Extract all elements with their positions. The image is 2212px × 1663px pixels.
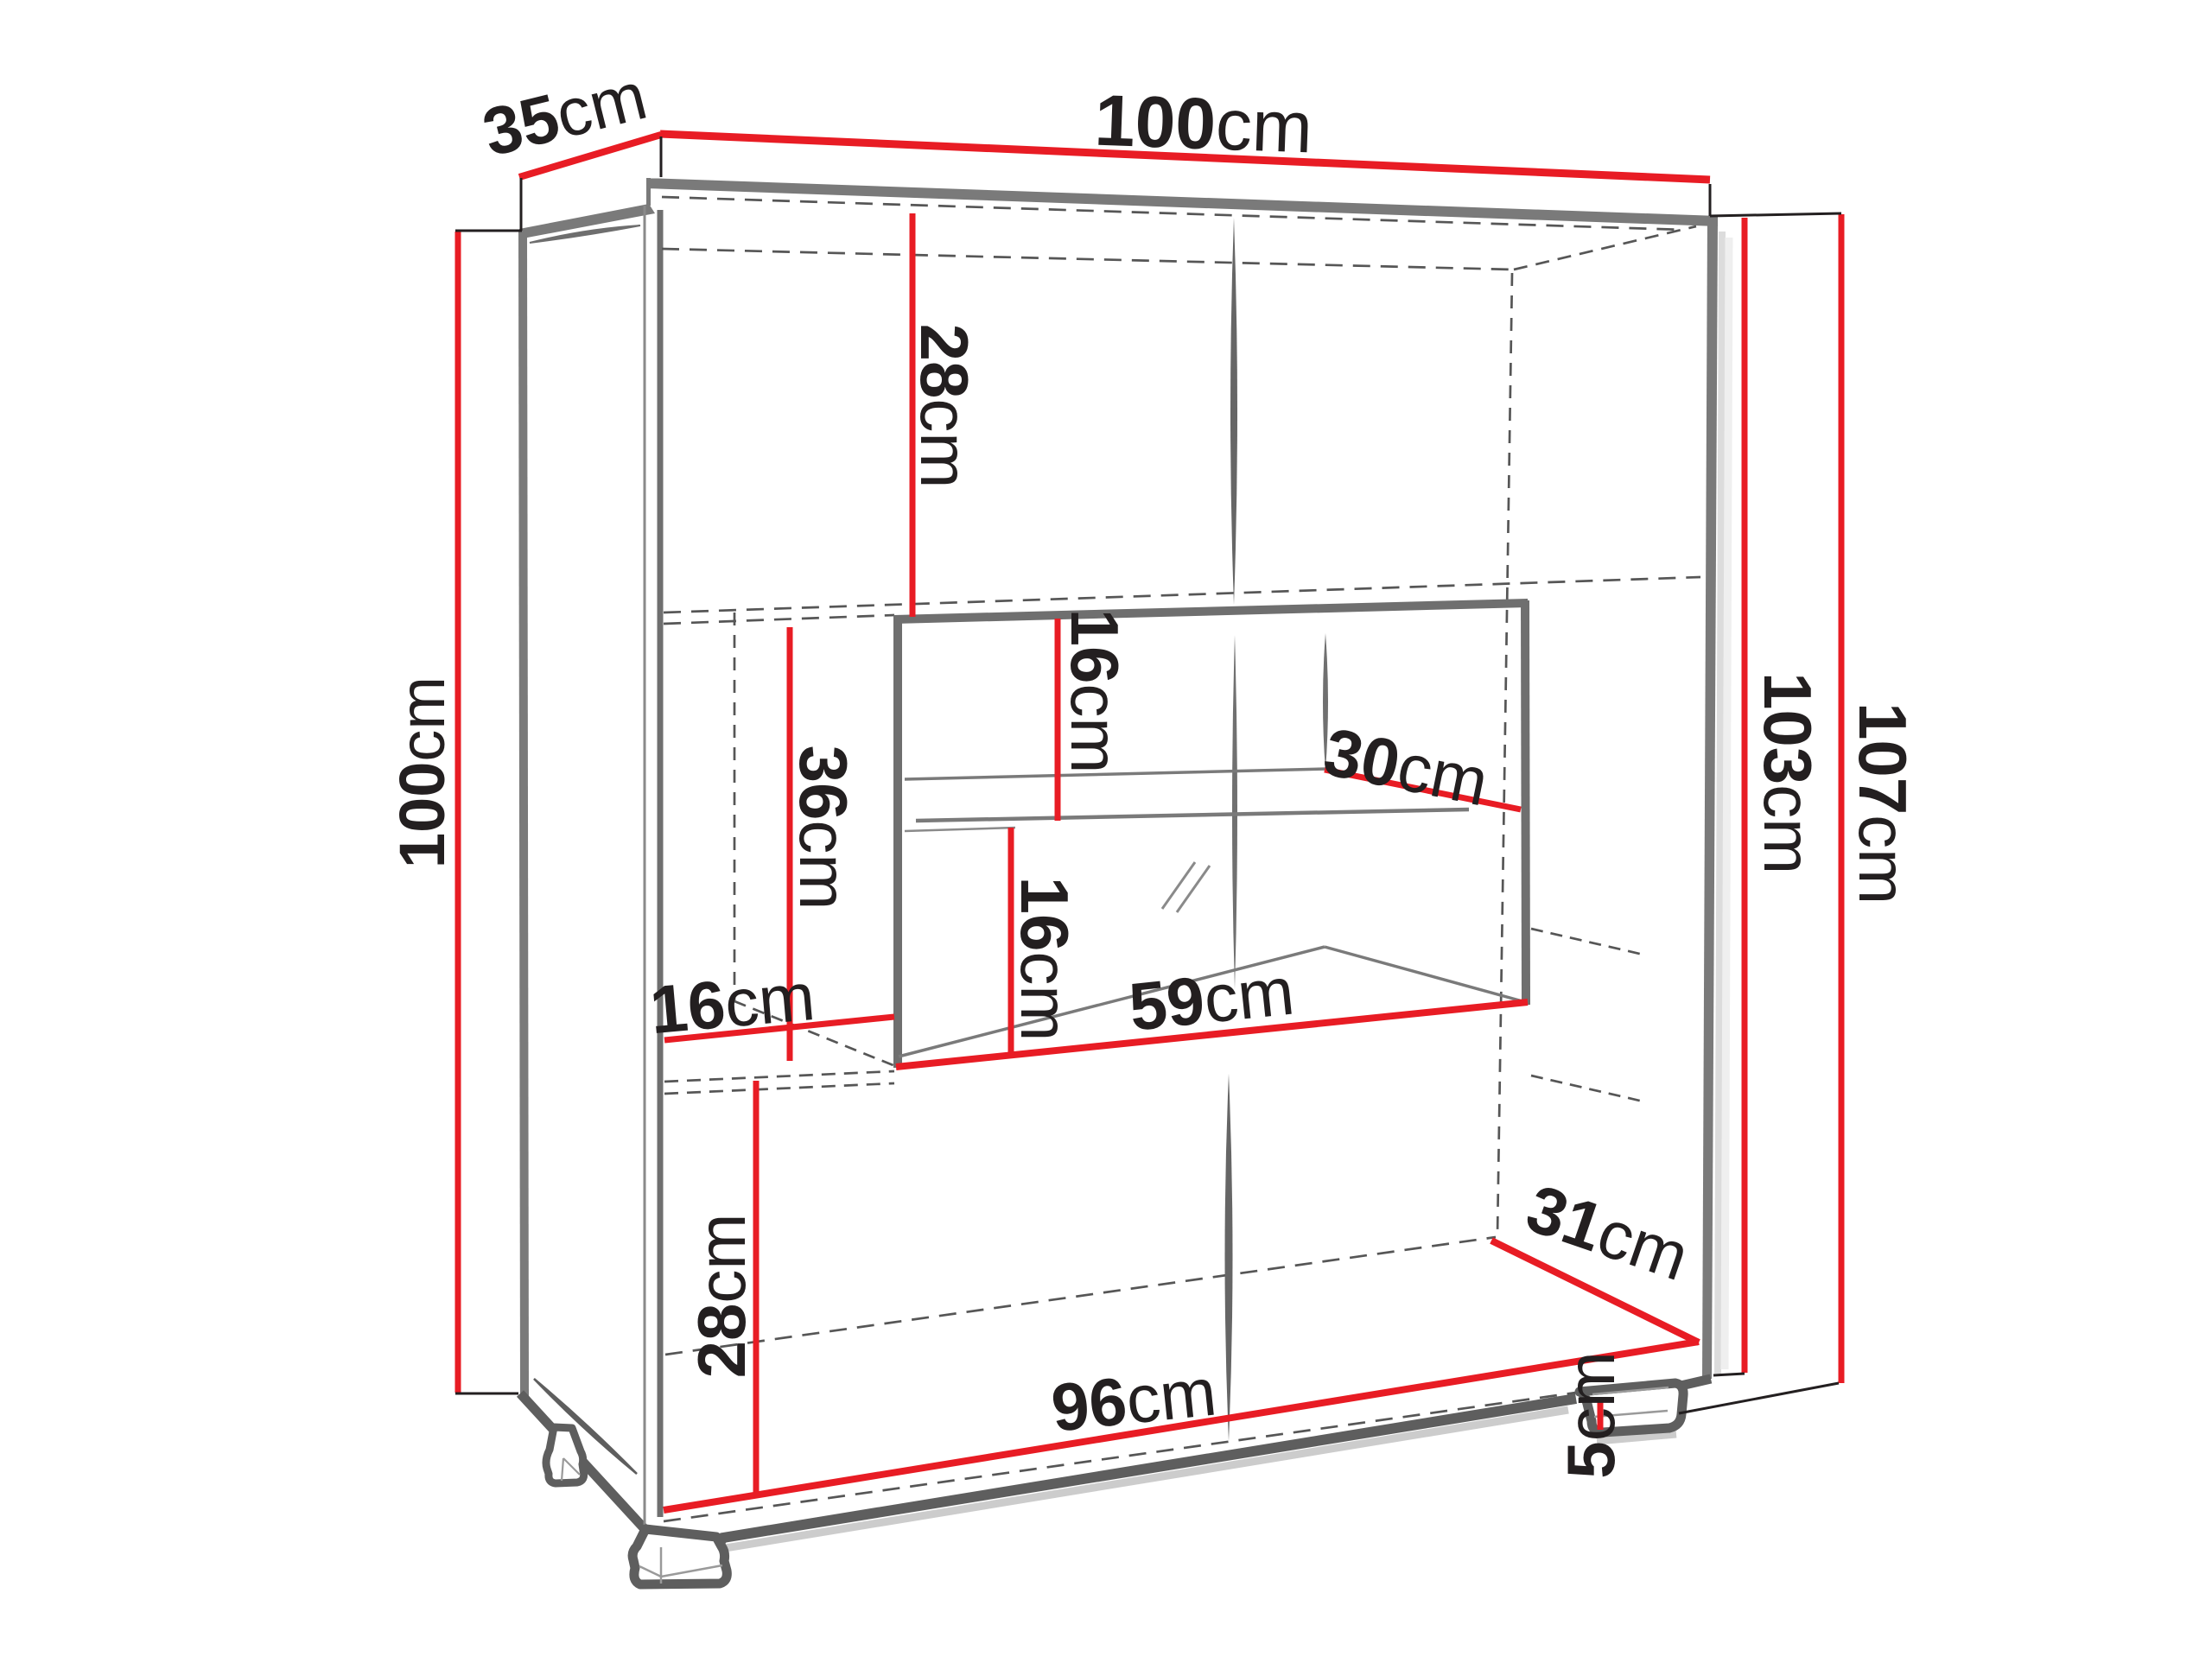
svg-text:16cm: 16cm [647,958,818,1048]
svg-text:16cm: 16cm [1057,609,1133,774]
svg-text:107cm: 107cm [1845,702,1921,904]
svg-text:5cm: 5cm [1553,1351,1629,1478]
svg-text:16cm: 16cm [1007,877,1083,1042]
svg-text:36cm: 36cm [785,746,861,911]
svg-text:28cm: 28cm [906,324,982,489]
svg-text:100cm: 100cm [1093,79,1313,168]
svg-text:28cm: 28cm [683,1214,760,1379]
svg-text:103cm: 103cm [1750,672,1826,874]
svg-text:100cm: 100cm [386,676,458,868]
